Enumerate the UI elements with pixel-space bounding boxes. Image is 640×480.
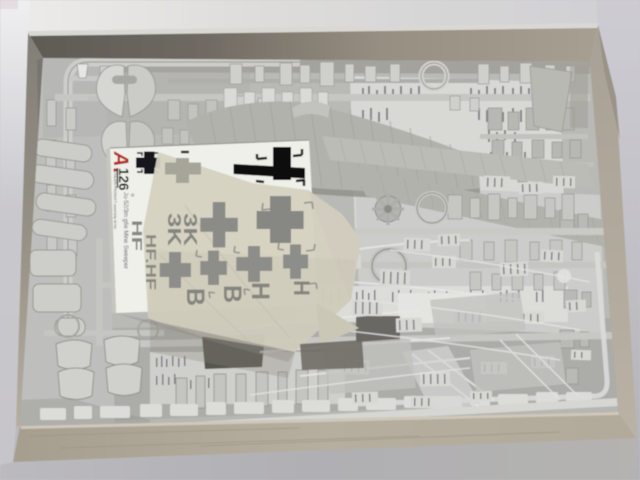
svg-text:B: B: [181, 288, 209, 306]
svg-text:3K: 3K: [180, 213, 200, 246]
svg-text:126: 126: [116, 168, 131, 191]
svg-text:ITALERI PRODUCT assembly kit N: ITALERI PRODUCT assembly kit No.: [113, 172, 117, 230]
svg-text:H: H: [289, 280, 314, 296]
svg-text:Ju-52/3m g6e Mine Sweeper: Ju-52/3m g6e Mine Sweeper: [122, 192, 128, 269]
svg-text:⊗: ⊗: [129, 193, 135, 197]
svg-text:HF.HF: HF.HF: [142, 234, 159, 290]
svg-text:H: H: [246, 282, 274, 300]
svg-text:A: A: [109, 151, 132, 167]
svg-text:B: B: [218, 285, 246, 303]
